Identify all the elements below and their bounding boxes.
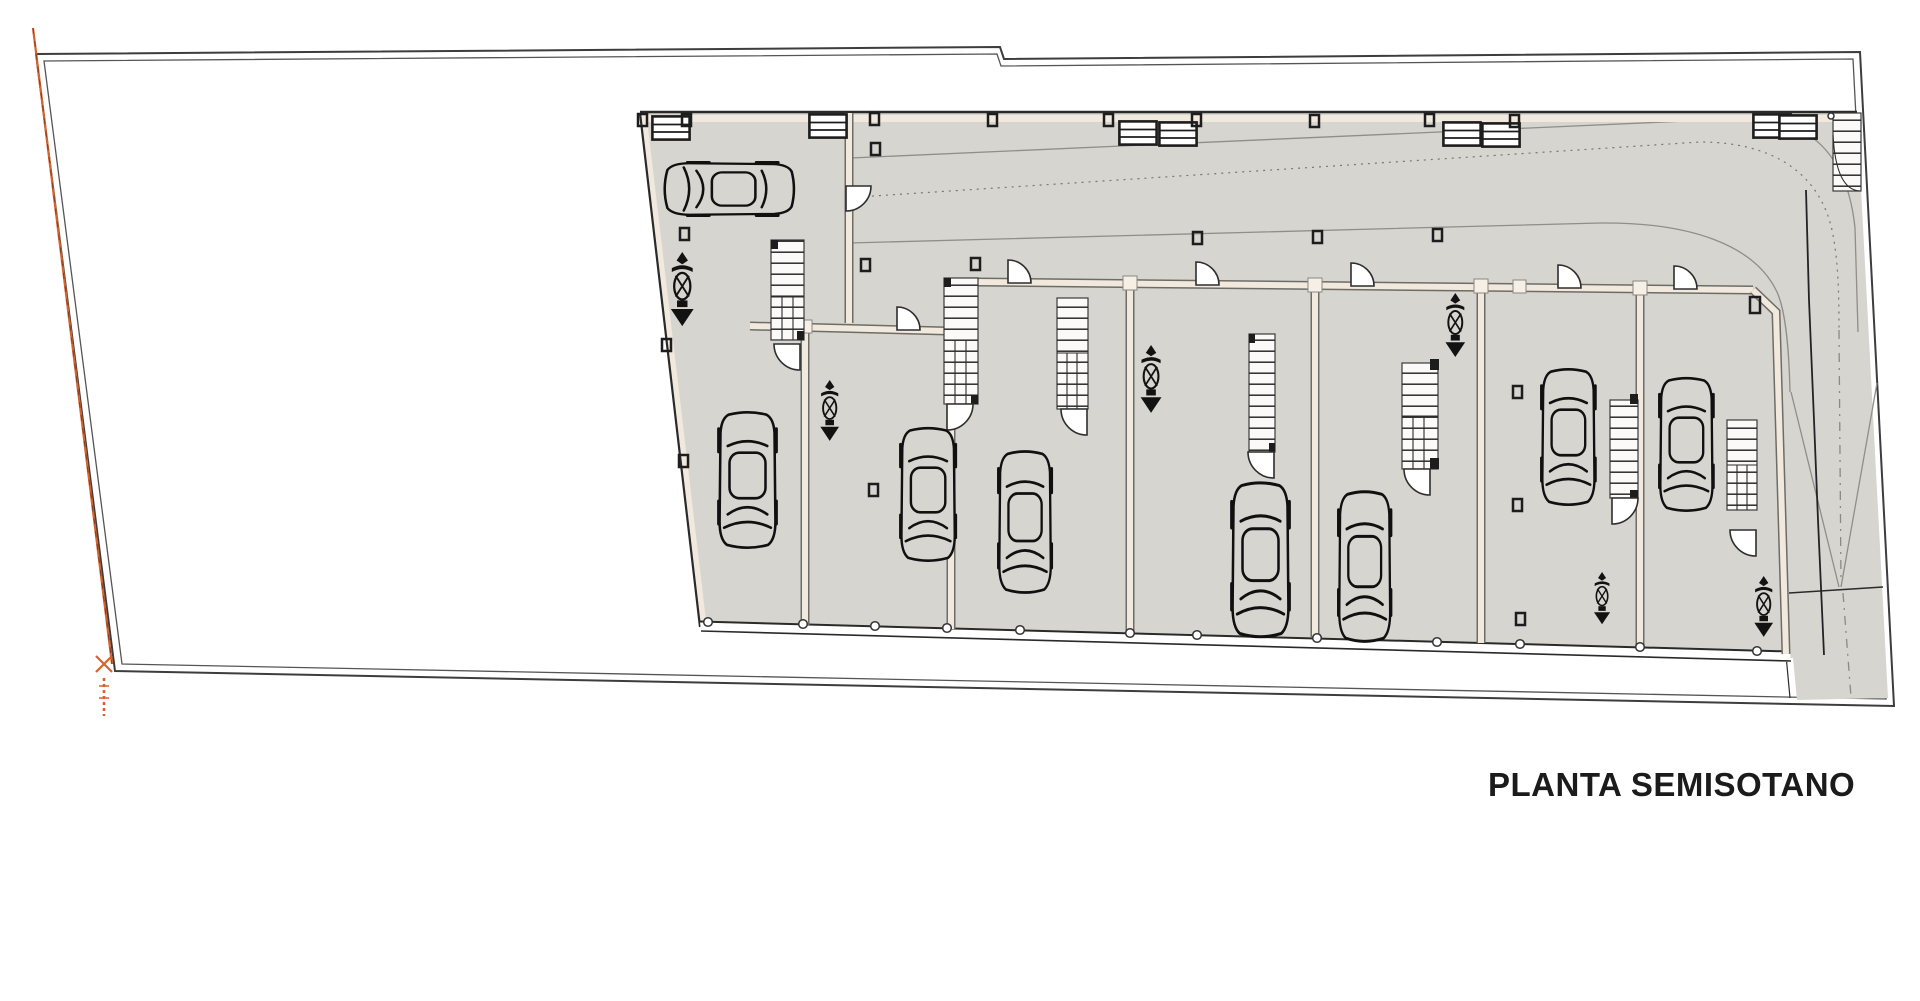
car-icon [1232,483,1290,637]
survey-marker-icon [96,656,112,716]
vent-grille-icon [1119,121,1156,144]
car-icon [998,451,1051,592]
car-icon [901,428,956,561]
floor-plan-page: PLANTA SEMISOTANO [0,0,1920,1001]
stair-icon [1727,420,1757,510]
car-icon [1338,492,1390,642]
stair-icon [1057,298,1088,409]
stair-icon [944,278,978,404]
stair-icon [1828,113,1861,191]
car-icon [1660,378,1714,511]
car-icon [1542,369,1596,504]
vent-grille-icon [1443,122,1480,145]
vent-grille-icon [809,114,846,137]
stair-icon [1249,334,1275,452]
vent-grille-icon [1779,115,1816,138]
stair-icon [771,240,804,340]
stair-icon [1402,359,1439,469]
plan-title: PLANTA SEMISOTANO [1488,766,1808,804]
stair-icon [1610,394,1638,500]
floor-plan-canvas [0,0,1920,1001]
vent-grille-icon [652,116,689,139]
car-icon [719,412,777,547]
car-icon [665,162,794,215]
property-line [33,28,112,716]
